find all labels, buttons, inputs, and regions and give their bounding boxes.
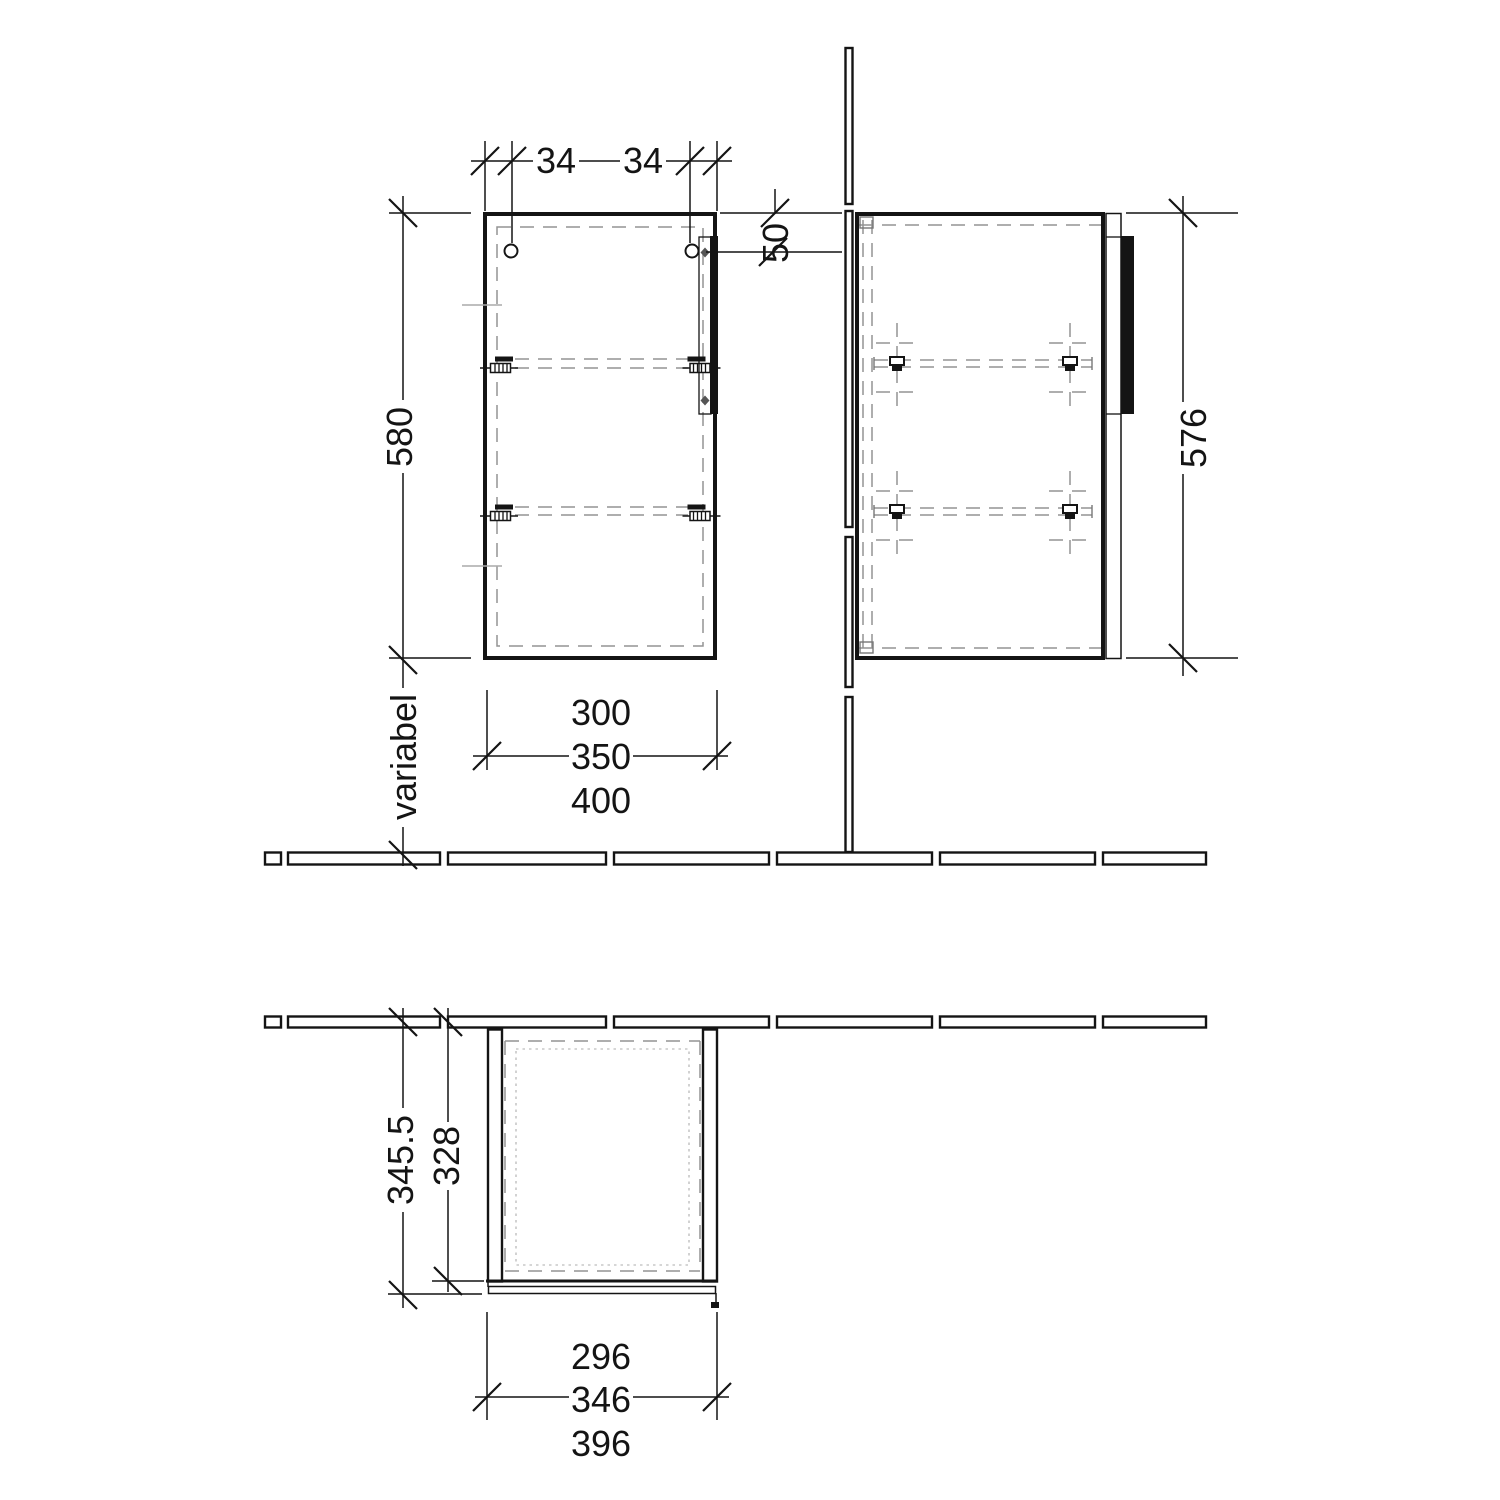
dim-front-height: 580 [379,407,420,467]
dim-hole-offset-left: 34 [536,140,576,181]
plan-door [489,1287,716,1294]
top-view-dimensions: 345.5 328 296 346 396 [380,1008,731,1464]
dim-handle-top-offset: 50 [755,223,796,263]
plan-left-panel [488,1030,502,1282]
side-cabinet-body [857,214,1103,658]
technical-drawing-page: 34 34 50 580 variabel 300 350 400 [0,0,1500,1500]
shelf-pin [890,505,904,519]
shelf-pin [890,357,904,371]
side-door-panel [1106,214,1121,659]
technical-drawing: 34 34 50 580 variabel 300 350 400 [0,0,1500,1500]
shelf-pin [1063,505,1077,519]
front-view [462,214,721,658]
dim-width-400: 400 [571,780,631,821]
dim-width-396: 396 [571,1423,631,1464]
dim-width-350: 350 [571,736,631,777]
shelf-pin [1063,357,1077,371]
dim-side-height: 576 [1173,408,1214,468]
handle-bar-side [1121,236,1134,414]
handle-bar-front [710,236,718,414]
dim-depth-overall: 345.5 [380,1115,421,1205]
top-view [486,1030,719,1309]
wall-line [846,48,853,852]
plan-right-panel [703,1030,717,1282]
front-cabinet-body [485,214,715,658]
dim-width-296: 296 [571,1336,631,1377]
dim-width-346: 346 [571,1379,631,1420]
plan-handle [711,1302,719,1308]
dim-width-300: 300 [571,692,631,733]
mount-hole-left [505,245,518,258]
dim-depth-carcass: 328 [426,1126,467,1186]
side-view [857,214,1134,659]
side-view-dimensions: 576 [1126,196,1238,676]
dim-floor-distance: variabel [383,694,424,820]
dim-hole-offset-right: 34 [623,140,663,181]
mount-hole-right [686,245,699,258]
